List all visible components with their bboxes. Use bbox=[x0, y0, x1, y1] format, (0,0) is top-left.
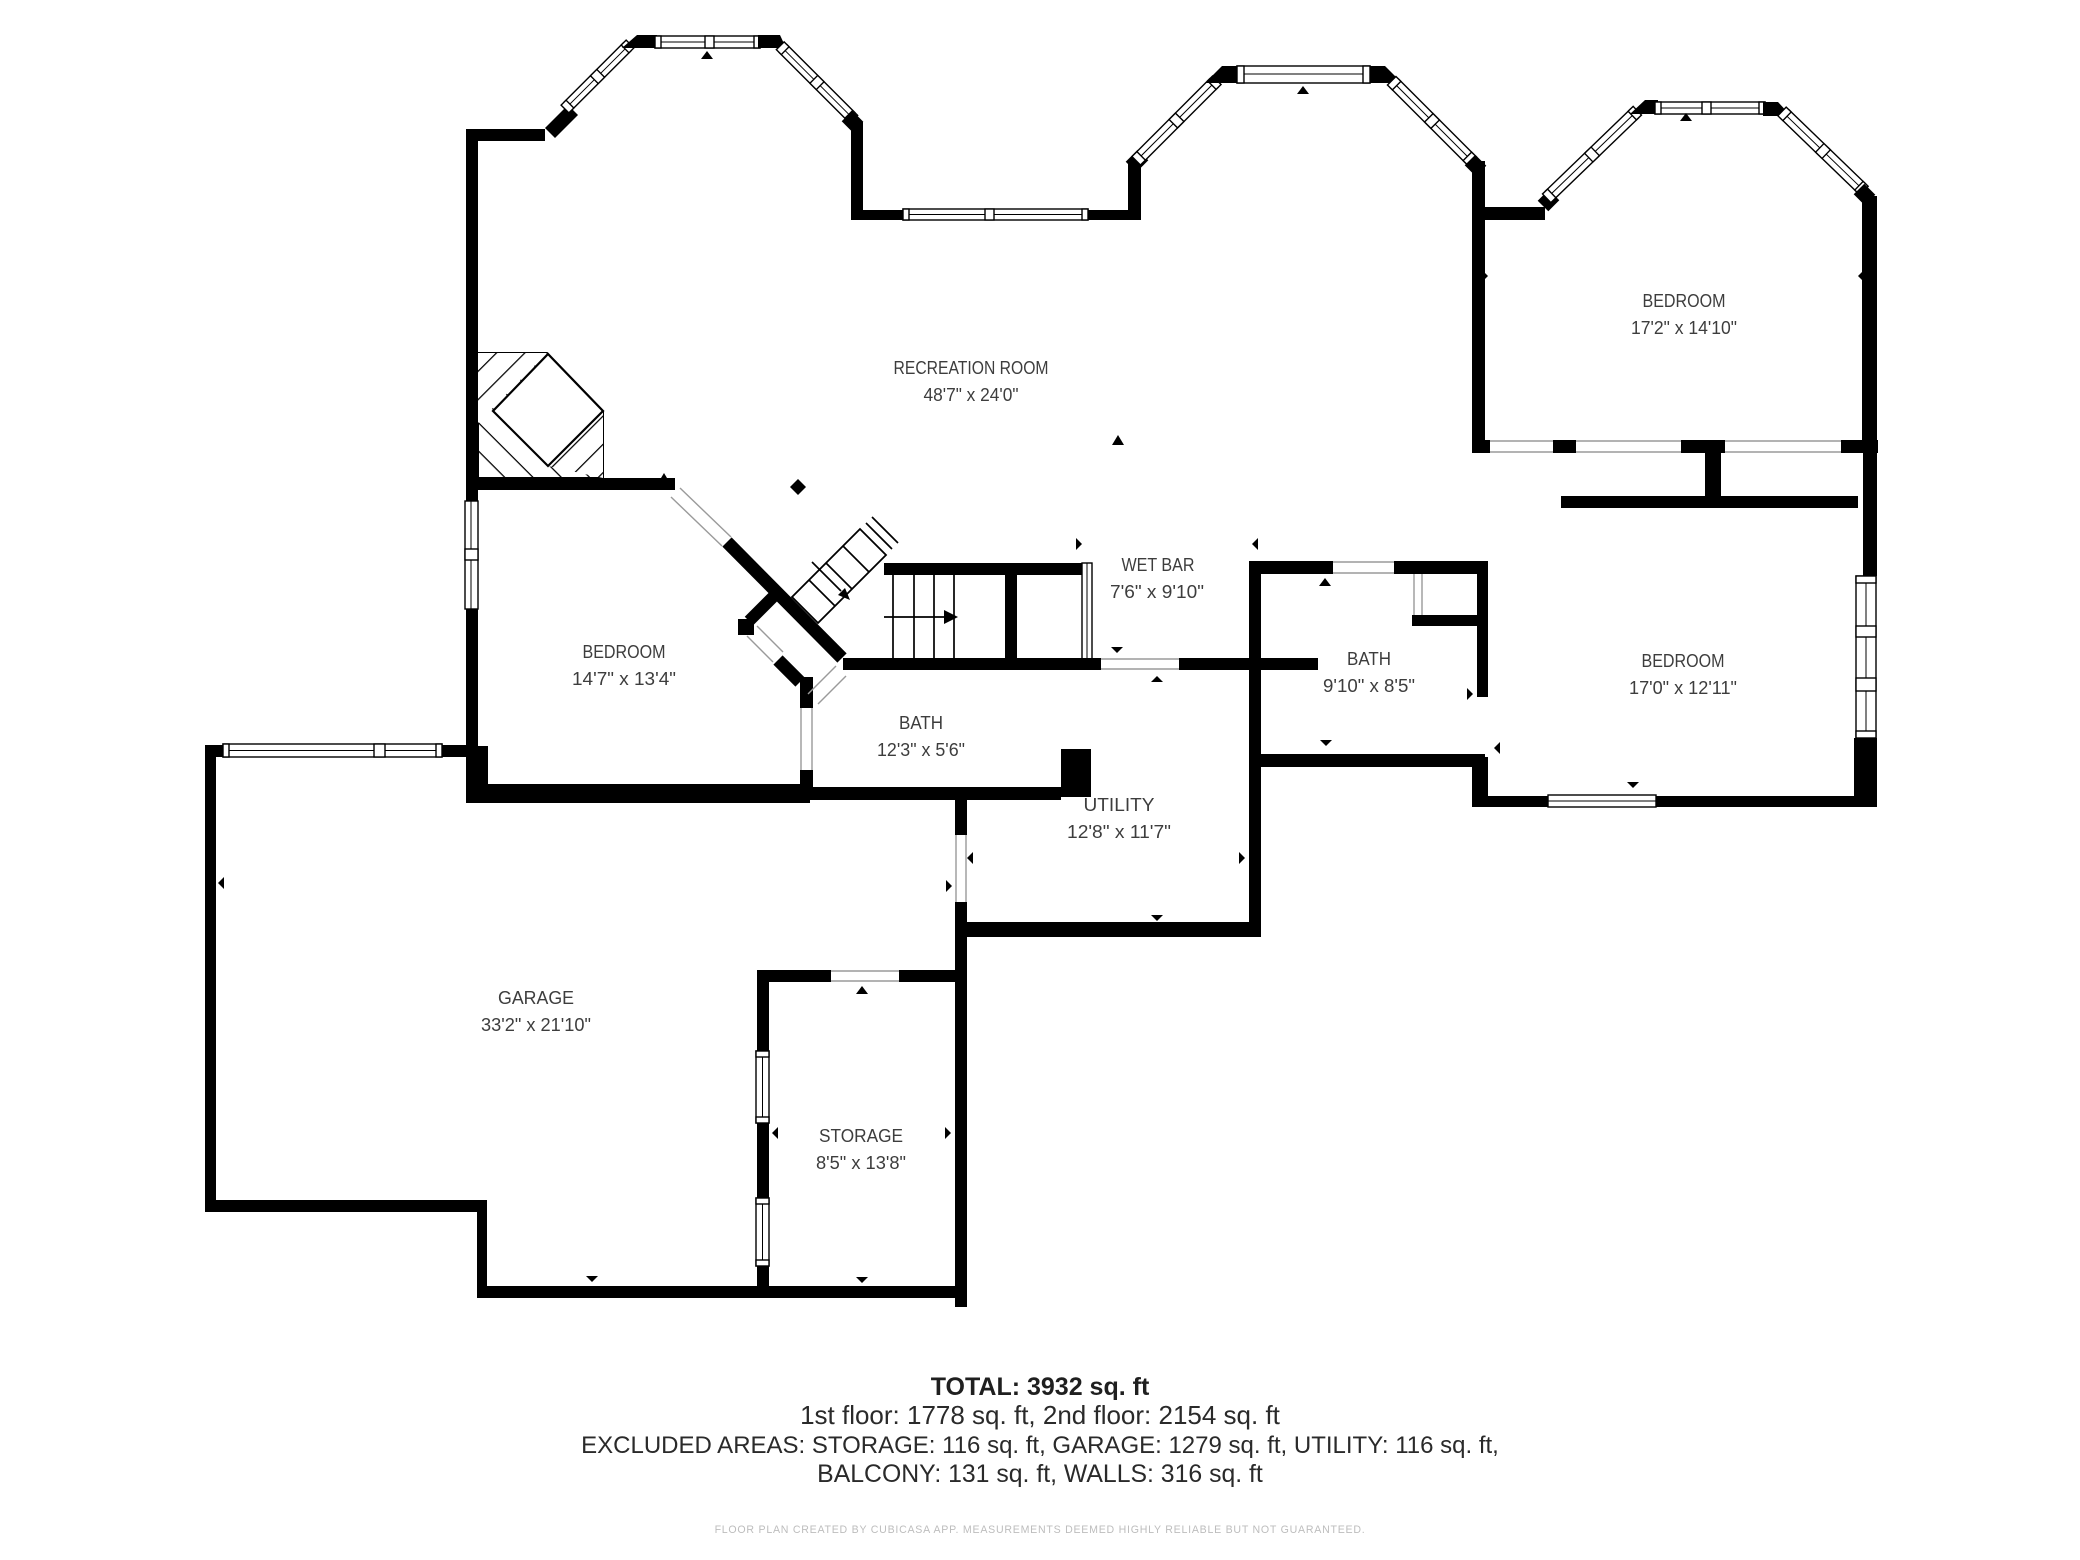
svg-text:1st floor: 1778 sq. ft, 2nd fl: 1st floor: 1778 sq. ft, 2nd floor: 2154 … bbox=[800, 1400, 1281, 1430]
svg-text:BEDROOM: BEDROOM bbox=[1642, 650, 1725, 671]
svg-text:17'0" x 12'11": 17'0" x 12'11" bbox=[1629, 677, 1737, 698]
svg-text:TOTAL: 3932 sq. ft: TOTAL: 3932 sq. ft bbox=[931, 1373, 1150, 1401]
svg-text:EXCLUDED AREAS: STORAGE: 116 s: EXCLUDED AREAS: STORAGE: 116 sq. ft, GAR… bbox=[581, 1432, 1499, 1459]
svg-text:17'2" x 14'10": 17'2" x 14'10" bbox=[1631, 317, 1737, 338]
svg-text:BEDROOM: BEDROOM bbox=[1643, 290, 1726, 311]
svg-text:12'8" x 11'7": 12'8" x 11'7" bbox=[1067, 821, 1171, 842]
svg-text:GARAGE: GARAGE bbox=[498, 987, 574, 1008]
svg-text:8'5" x 13'8": 8'5" x 13'8" bbox=[816, 1152, 906, 1173]
svg-text:12'3" x 5'6": 12'3" x 5'6" bbox=[877, 739, 965, 760]
svg-text:48'7" x 24'0": 48'7" x 24'0" bbox=[924, 384, 1019, 405]
svg-text:BATH: BATH bbox=[1347, 648, 1391, 669]
svg-text:33'2" x 21'10": 33'2" x 21'10" bbox=[481, 1014, 591, 1035]
svg-text:RECREATION ROOM: RECREATION ROOM bbox=[894, 357, 1049, 378]
svg-text:BEDROOM: BEDROOM bbox=[583, 641, 666, 662]
svg-text:UTILITY: UTILITY bbox=[1084, 794, 1155, 815]
svg-text:WET BAR: WET BAR bbox=[1122, 554, 1195, 575]
svg-text:BALCONY: 131 sq. ft, WALLS: 31: BALCONY: 131 sq. ft, WALLS: 316 sq. ft bbox=[817, 1461, 1263, 1488]
svg-text:7'6" x 9'10": 7'6" x 9'10" bbox=[1110, 581, 1204, 602]
svg-text:BATH: BATH bbox=[899, 712, 943, 733]
svg-text:FLOOR PLAN CREATED BY CUBICASA: FLOOR PLAN CREATED BY CUBICASA APP. MEAS… bbox=[715, 1524, 1366, 1536]
svg-text:STORAGE: STORAGE bbox=[819, 1125, 903, 1146]
svg-text:9'10" x 8'5": 9'10" x 8'5" bbox=[1323, 675, 1415, 696]
svg-text:14'7" x 13'4": 14'7" x 13'4" bbox=[572, 668, 676, 689]
